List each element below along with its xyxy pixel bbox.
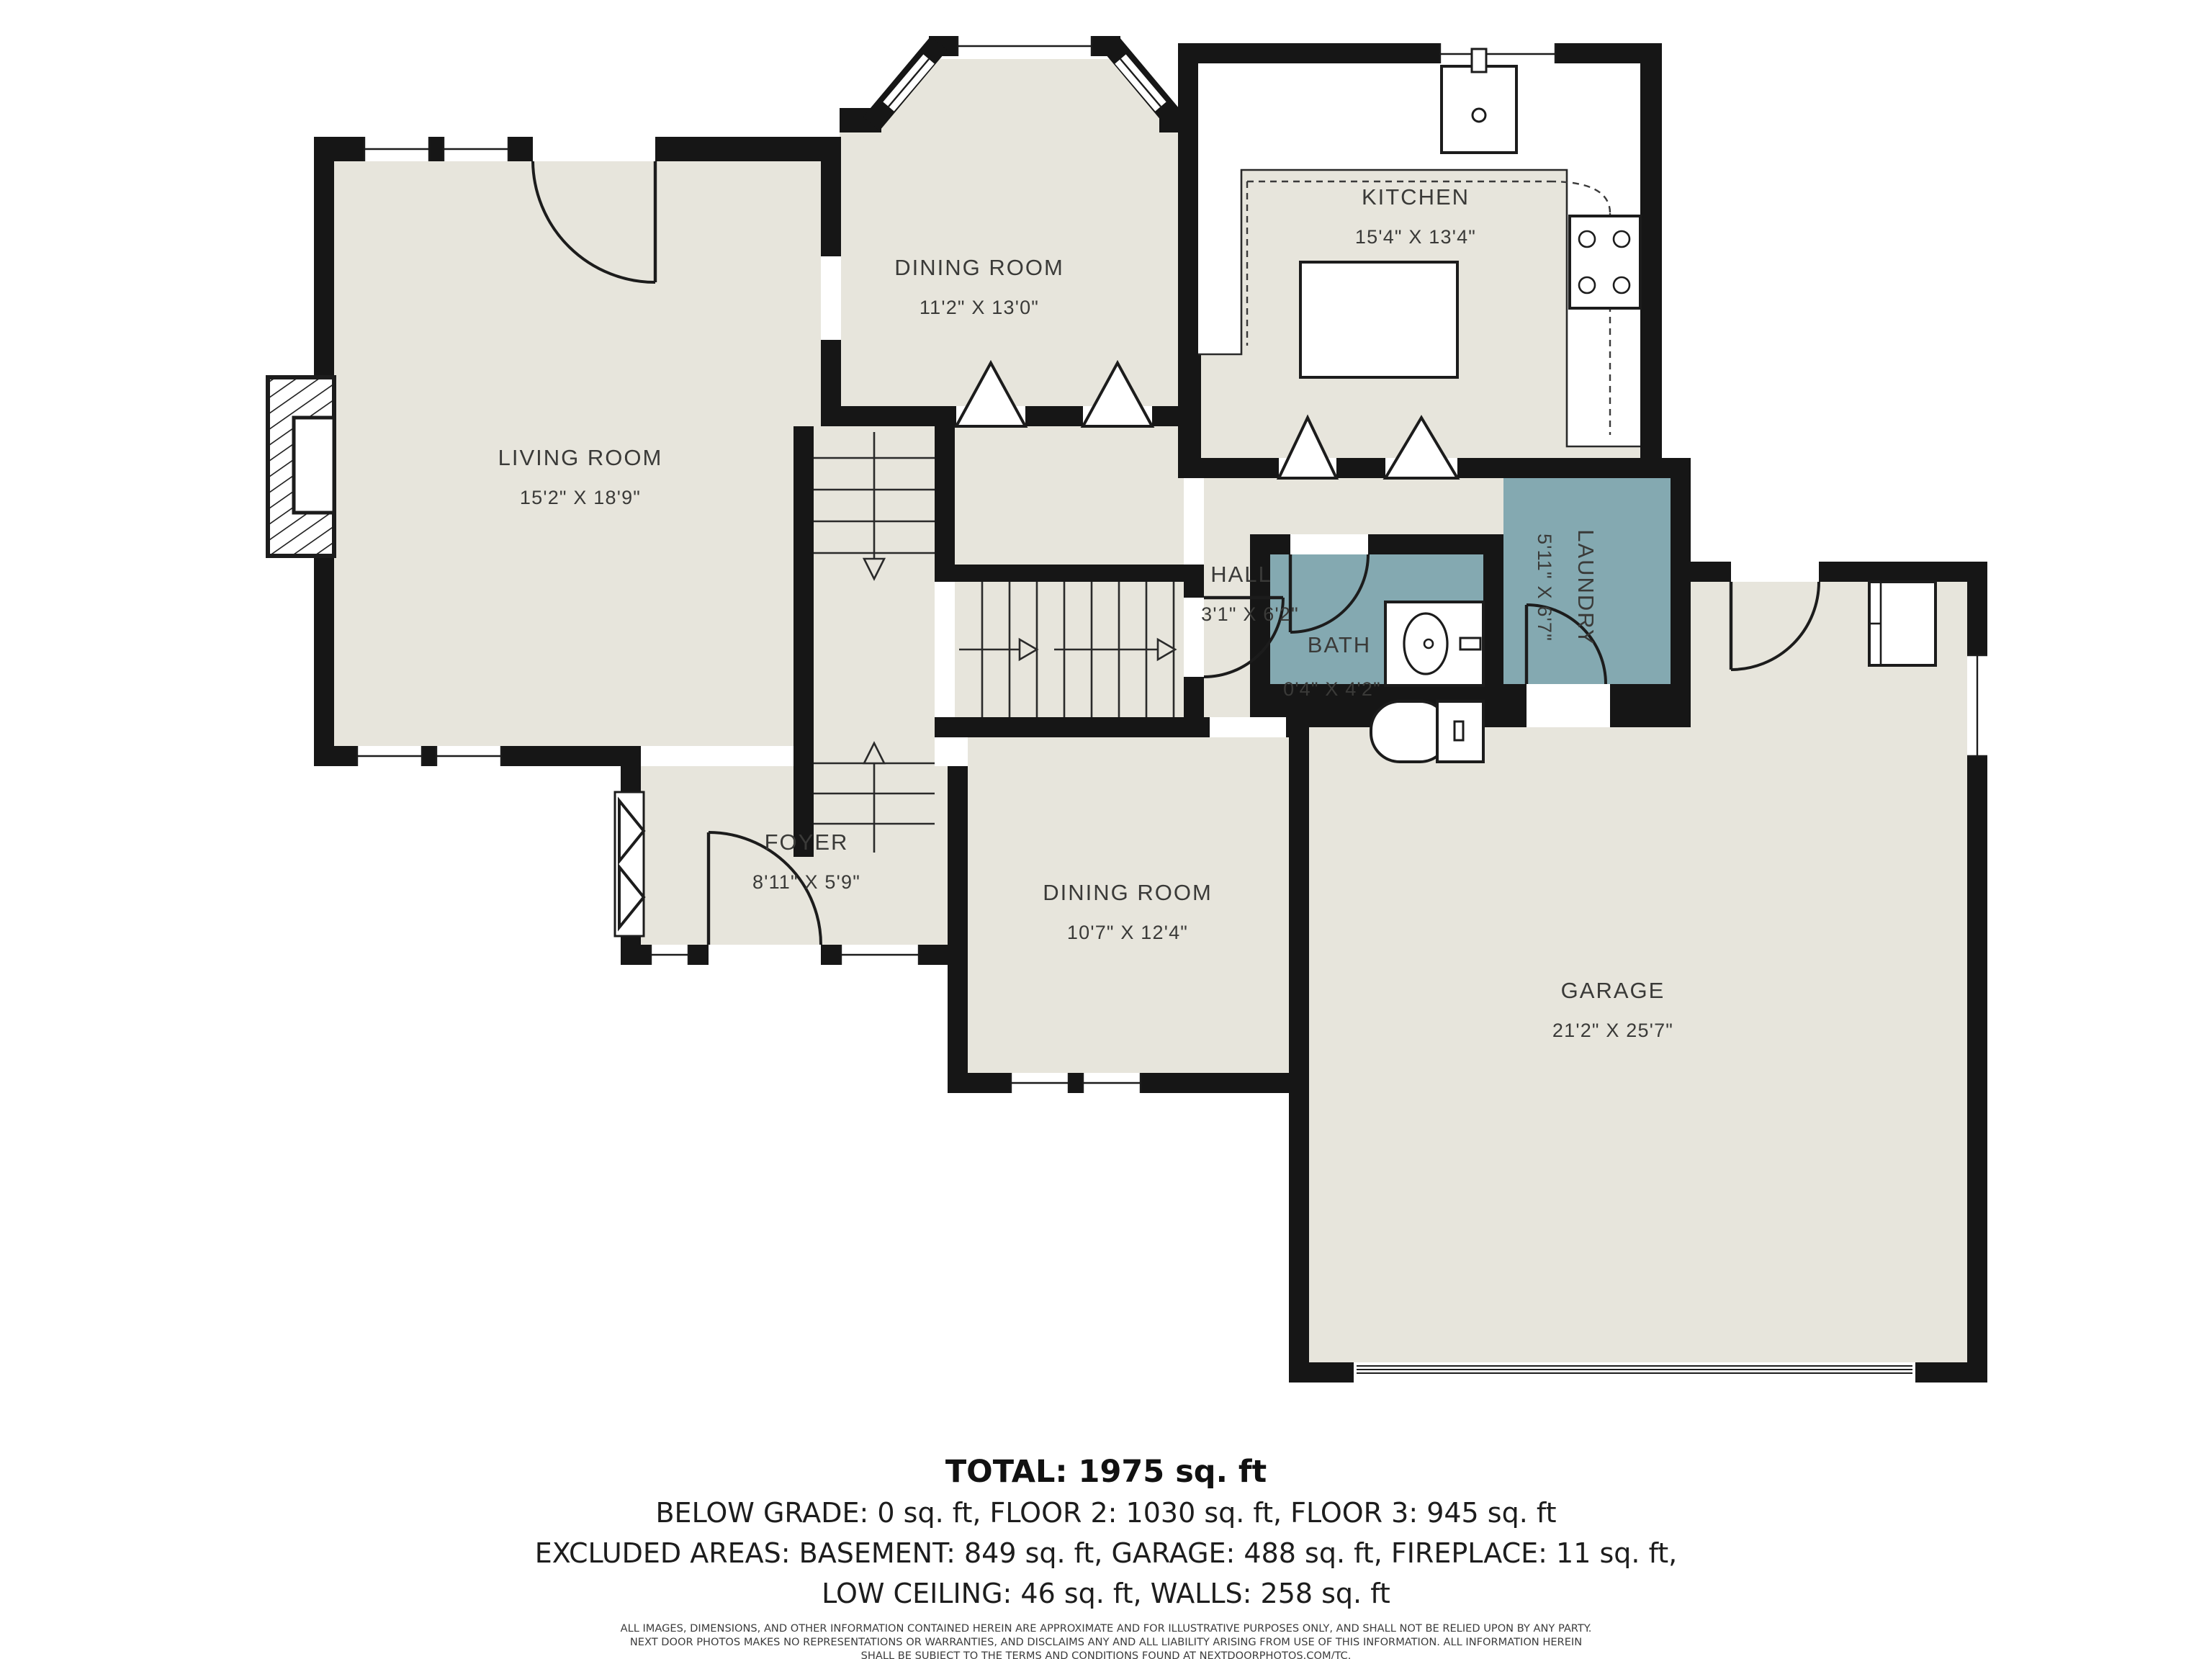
low-ceiling-text: LOW CEILING: 46 sq. ft, WALLS: 258 sq. f…: [822, 1578, 1390, 1609]
floor-plan-svg: LIVING ROOM 15'2" X 18'9" DINING ROOM 11…: [0, 0, 2212, 1659]
disclaimer-line-3: SHALL BE SUBJECT TO THE TERMS AND CONDIT…: [861, 1650, 1352, 1659]
total-area-text: TOTAL: 1975 sq. ft: [945, 1454, 1267, 1490]
window: [436, 746, 501, 766]
bath-dims: 0'4" X 4'2": [1283, 678, 1381, 700]
window: [444, 137, 508, 161]
foyer-label: FOYER: [765, 829, 849, 855]
dining-room-lower-label: DINING ROOM: [1043, 880, 1213, 905]
window: [1440, 43, 1555, 65]
page: LIVING ROOM 15'2" X 18'9" DINING ROOM 11…: [0, 0, 2212, 1659]
garage-door: [1354, 1362, 1915, 1382]
firebox: [294, 418, 334, 513]
summary-block: TOTAL: 1975 sq. ft BELOW GRADE: 0 sq. ft…: [535, 1454, 1678, 1659]
toilet: [1371, 701, 1483, 762]
stove: [1570, 216, 1640, 308]
kitchen-label: KITCHEN: [1362, 184, 1470, 210]
hall-dims: 3'1" X 6'2": [1201, 603, 1299, 625]
foyer-sidelight: [615, 792, 644, 936]
laundry-label: LAUNDRY: [1573, 529, 1599, 646]
window: [651, 945, 688, 965]
bath-fixtures: [1371, 602, 1483, 762]
garage-dims: 21'2" X 25'7": [1552, 1020, 1673, 1041]
floor-plan-stage: LIVING ROOM 15'2" X 18'9" DINING ROOM 11…: [0, 0, 2212, 1659]
hall-label: HALL: [1210, 562, 1272, 587]
window: [958, 36, 1092, 56]
living-room-dims: 15'2" X 18'9": [520, 487, 641, 508]
garage-label: GARAGE: [1561, 978, 1665, 1003]
window: [357, 746, 422, 766]
fireplace: [268, 377, 334, 556]
window: [841, 945, 919, 965]
foyer-dims: 8'11" X 5'9": [752, 871, 860, 893]
disclaimer-line-2: NEXT DOOR PHOTOS MAKES NO REPRESENTATION…: [630, 1636, 1582, 1648]
garage-closet: [1869, 582, 1935, 665]
dining-room-upper-label: DINING ROOM: [894, 255, 1064, 280]
bath-label: BATH: [1308, 632, 1371, 657]
bath-sink: [1385, 602, 1483, 685]
laundry-dims: 5'11" X 6'7": [1534, 534, 1555, 642]
living-room-label: LIVING ROOM: [498, 445, 663, 470]
floors-area-text: BELOW GRADE: 0 sq. ft, FLOOR 2: 1030 sq.…: [655, 1497, 1556, 1529]
window: [1011, 1073, 1069, 1093]
window: [1083, 1073, 1141, 1093]
window: [364, 137, 429, 161]
dining-room-upper-dims: 11'2" X 13'0": [920, 297, 1039, 318]
dining-room-lower-floor: [968, 737, 1289, 1073]
disclaimer-line-1: ALL IMAGES, DIMENSIONS, AND OTHER INFORM…: [621, 1622, 1592, 1635]
window: [1967, 655, 1987, 756]
excluded-area-text: EXCLUDED AREAS: BASEMENT: 849 sq. ft, GA…: [535, 1537, 1678, 1569]
kitchen-dims: 15'4" X 13'4": [1355, 226, 1476, 248]
dining-room-lower-dims: 10'7" X 12'4": [1067, 922, 1188, 943]
kitchen-island: [1300, 262, 1457, 377]
